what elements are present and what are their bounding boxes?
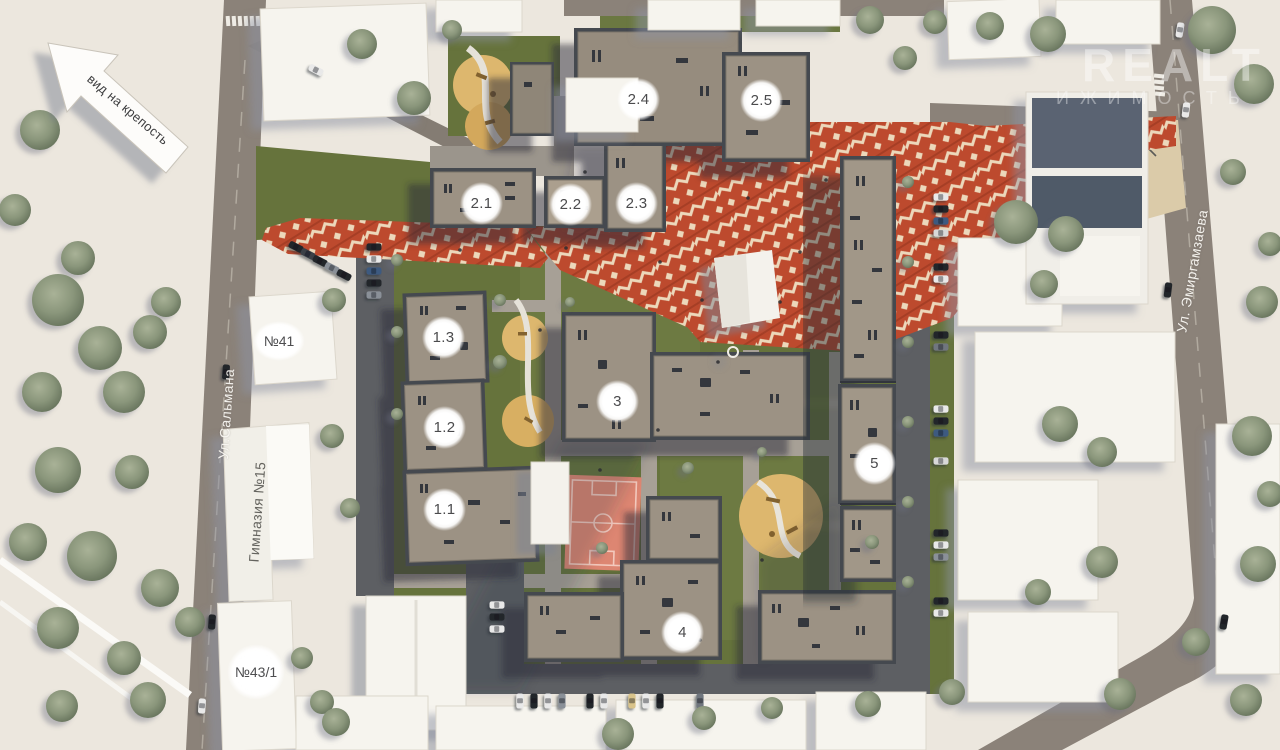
building-marker-2-3[interactable]: 2.3: [615, 182, 658, 225]
building-tower: [510, 62, 554, 136]
building-3-wing: [650, 352, 810, 440]
building-5-strip: [838, 156, 896, 582]
building-4-north: [646, 496, 722, 562]
siteplan-view: вид на крепость Ул.Сальмана Ул. Эмиргамз…: [0, 0, 1280, 750]
building-marker-2-1[interactable]: 2.1: [460, 182, 503, 225]
building-marker-5[interactable]: 5: [853, 442, 896, 485]
building-marker-2-4[interactable]: 2.4: [617, 78, 660, 121]
building-marker-2-2[interactable]: 2.2: [549, 183, 592, 226]
building-marker-1-2[interactable]: 1.2: [423, 406, 466, 449]
building-se-block: [758, 590, 896, 664]
building-marker-1-3[interactable]: 1.3: [422, 316, 465, 359]
building-marker-1-1[interactable]: 1.1: [423, 488, 466, 531]
building-4-west: [524, 592, 624, 662]
building-marker-4[interactable]: 4: [661, 611, 704, 654]
building-marker-2-5[interactable]: 2.5: [740, 79, 783, 122]
building-marker-3[interactable]: 3: [596, 380, 639, 423]
